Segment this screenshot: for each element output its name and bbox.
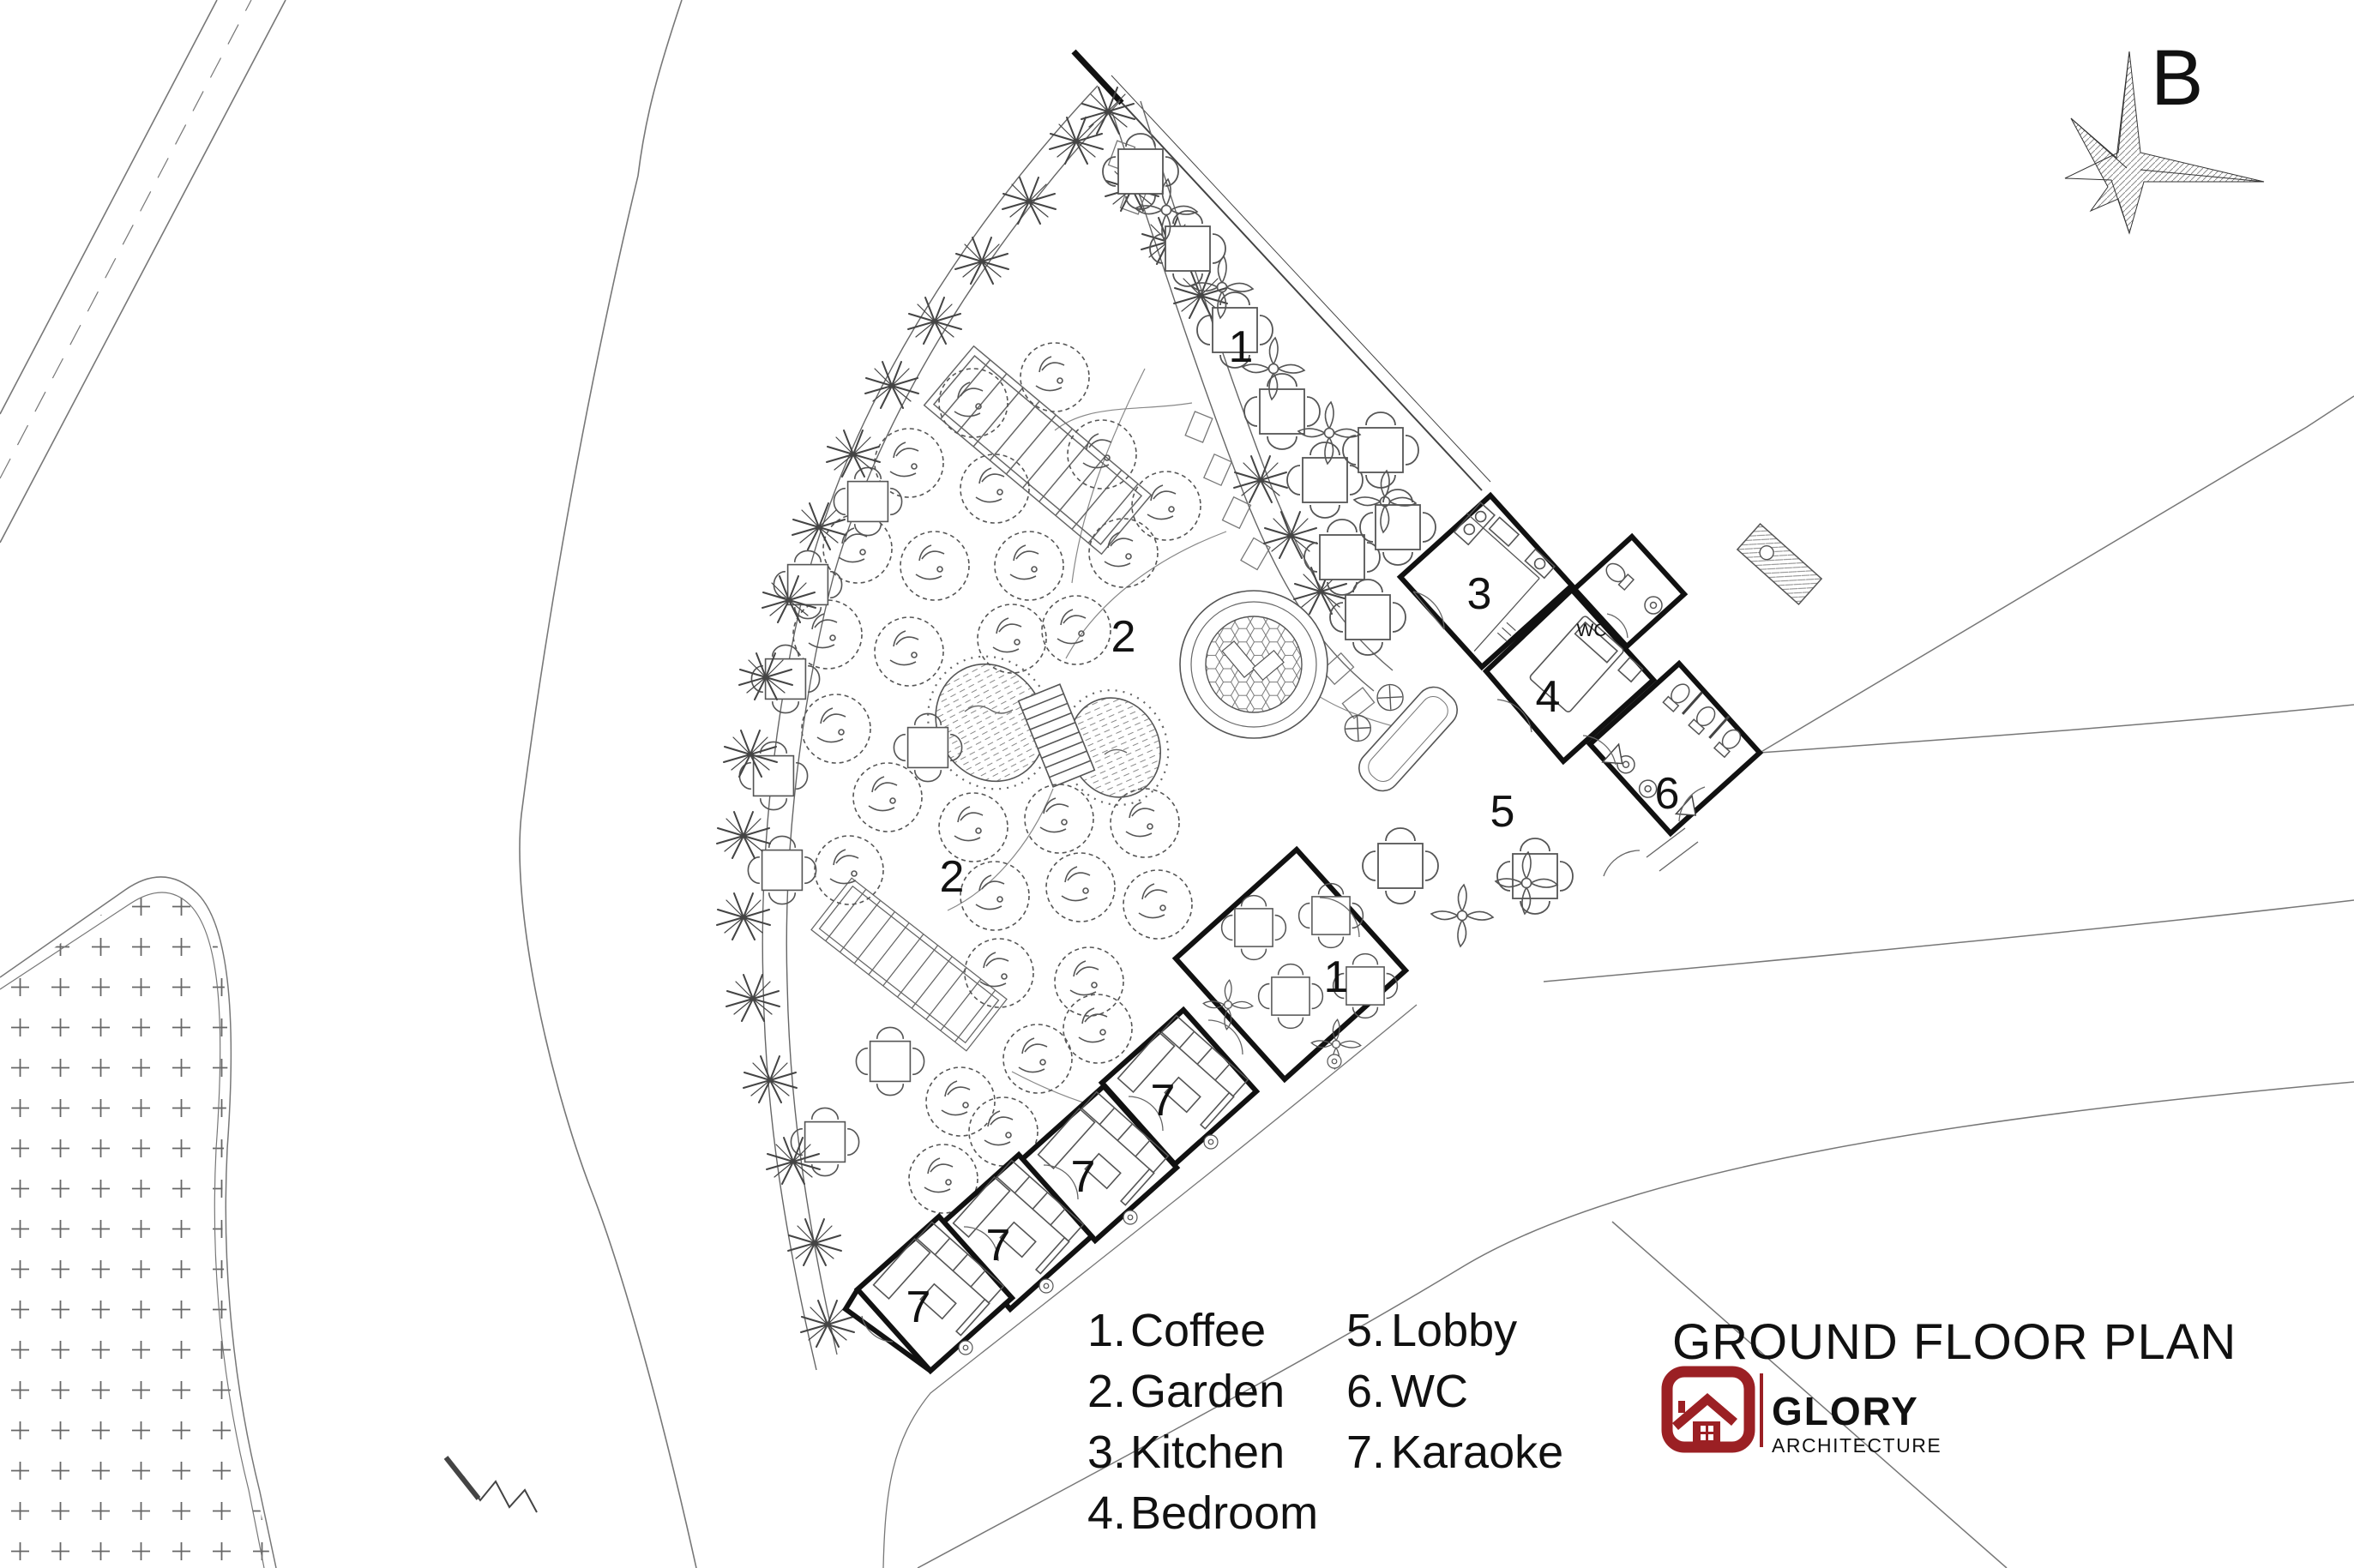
label-coffee-indoor: 1	[1324, 952, 1349, 1002]
garden-tables	[739, 467, 961, 1175]
label-wc-small: WC	[1577, 621, 1607, 640]
west-road-curve	[520, 0, 696, 1568]
floor-plan-canvas: 1 2 2 3 4 5 6 1 7 7 7 7 WC B 1. Coffee 2…	[0, 0, 2354, 1568]
right-wing	[1400, 496, 1821, 833]
label-kitchen: 3	[1467, 569, 1492, 619]
label-karaoke-3: 7	[986, 1221, 1011, 1271]
coffee-terrace-top	[1103, 134, 1436, 655]
compass-label: B	[2151, 34, 2203, 122]
label-wc6: 6	[1655, 769, 1680, 819]
pergola-upper	[924, 346, 1152, 554]
logo-divider	[1760, 1373, 1763, 1447]
label-karaoke-4: 7	[906, 1283, 931, 1332]
legend-item-2: 2. Garden	[1087, 1366, 1285, 1417]
label-karaoke-1: 7	[1151, 1076, 1176, 1126]
legend: 1. Coffee 2. Garden 3. Kitchen 4. Bedroo…	[1087, 1305, 1563, 1539]
bar-counter	[1737, 524, 1821, 604]
road-top-left	[0, 0, 286, 543]
logo: GLORY ARCHITECTURE	[1667, 1372, 1942, 1457]
label-garden-lower: 2	[940, 852, 965, 902]
page-title: GROUND FLOOR PLAN	[1672, 1314, 2237, 1370]
legend-item-7: 7. Karaoke	[1346, 1427, 1563, 1478]
lobby-patio	[1363, 828, 1698, 946]
label-garden-upper: 2	[1111, 612, 1136, 662]
legend-item-3: 3. Kitchen	[1087, 1427, 1285, 1478]
logo-brand: GLORY	[1772, 1389, 1919, 1433]
legend-item-4: 4. Bedroom	[1087, 1487, 1318, 1539]
legend-item-1: 1. Coffee	[1087, 1305, 1266, 1356]
entry-gate-zigzag	[446, 1457, 537, 1512]
floor-plan-page: 1 2 2 3 4 5 6 1 7 7 7 7 WC B 1. Coffee 2…	[0, 0, 2354, 1568]
plus-field	[0, 877, 276, 1568]
label-karaoke-2: 7	[1071, 1152, 1096, 1202]
reception-desk	[1325, 656, 1464, 798]
legend-item-5: 5. Lobby	[1346, 1305, 1517, 1356]
compass: B	[2065, 34, 2264, 233]
label-coffee-top: 1	[1229, 322, 1254, 372]
gazebo	[1180, 591, 1328, 738]
legend-item-6: 6. WC	[1346, 1366, 1468, 1417]
label-bedroom: 4	[1536, 672, 1561, 722]
logo-tagline: ARCHITECTURE	[1772, 1434, 1942, 1457]
label-lobby: 5	[1490, 787, 1515, 837]
